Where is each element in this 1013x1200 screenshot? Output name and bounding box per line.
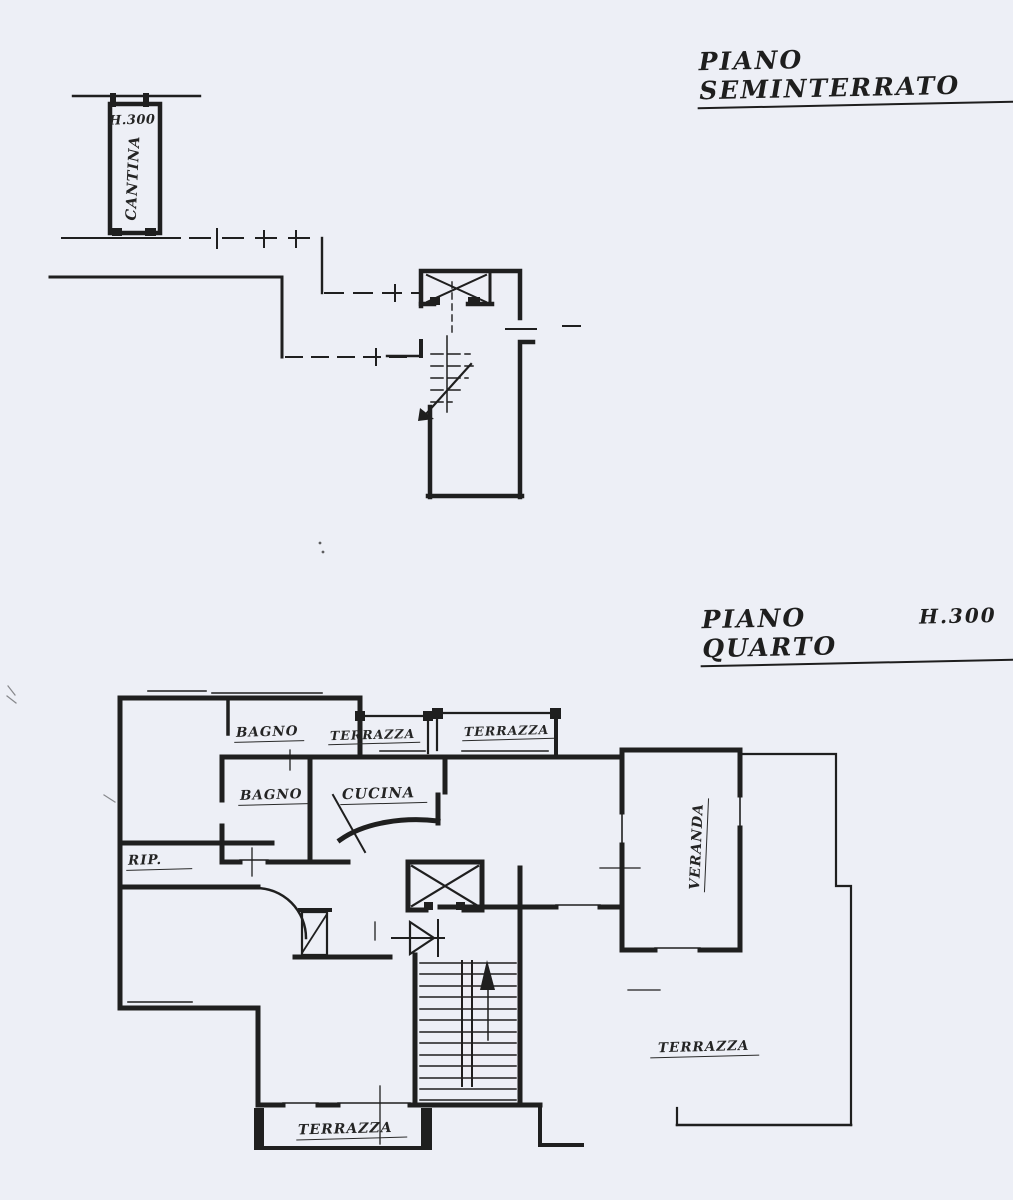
cantina-height-label: H.300	[109, 112, 156, 128]
room-label-terrazza-south: TERRAZZA	[296, 1120, 407, 1139]
fourth-floor-plan-title: PIANO QUARTO H.300	[699, 599, 1013, 668]
entrance-door-icon	[392, 920, 444, 956]
room-label-rip: RIP.	[126, 851, 193, 869]
veranda-walls	[622, 750, 740, 950]
elevator-shaft-basement	[421, 271, 520, 332]
basement-plan-drawing	[7, 96, 580, 703]
basement-title-text: PIANO SEMINTERRATO	[698, 41, 997, 105]
room-label-terrazza-top-left: TERRAZZA	[328, 726, 421, 743]
room-label-cucina: CUCINA	[340, 784, 427, 803]
staircase-basement	[387, 336, 533, 497]
fourth-floor-title-text: PIANO QUARTO	[701, 601, 902, 663]
fourth-floor-title-height: H.300	[919, 603, 997, 629]
room-label-bagno-top: BAGNO	[234, 723, 304, 741]
room-label-terrazza-top-right: TERRAZZA	[462, 722, 555, 739]
fourth-floor-plan-drawing	[104, 691, 851, 1150]
floor-plan-linework	[0, 0, 1013, 1200]
room-label-bagno: BAGNO	[238, 786, 308, 804]
scanned-floor-plan-page: PIANO SEMINTERRATO PIANO QUARTO H.300 H.…	[0, 0, 1013, 1200]
door-arc	[256, 888, 306, 938]
basement-plan-title: PIANO SEMINTERRATO	[696, 41, 1013, 110]
elevator-shaft-fourth-floor	[408, 862, 482, 910]
room-label-terrazza-east: TERRAZZA	[650, 1038, 760, 1057]
